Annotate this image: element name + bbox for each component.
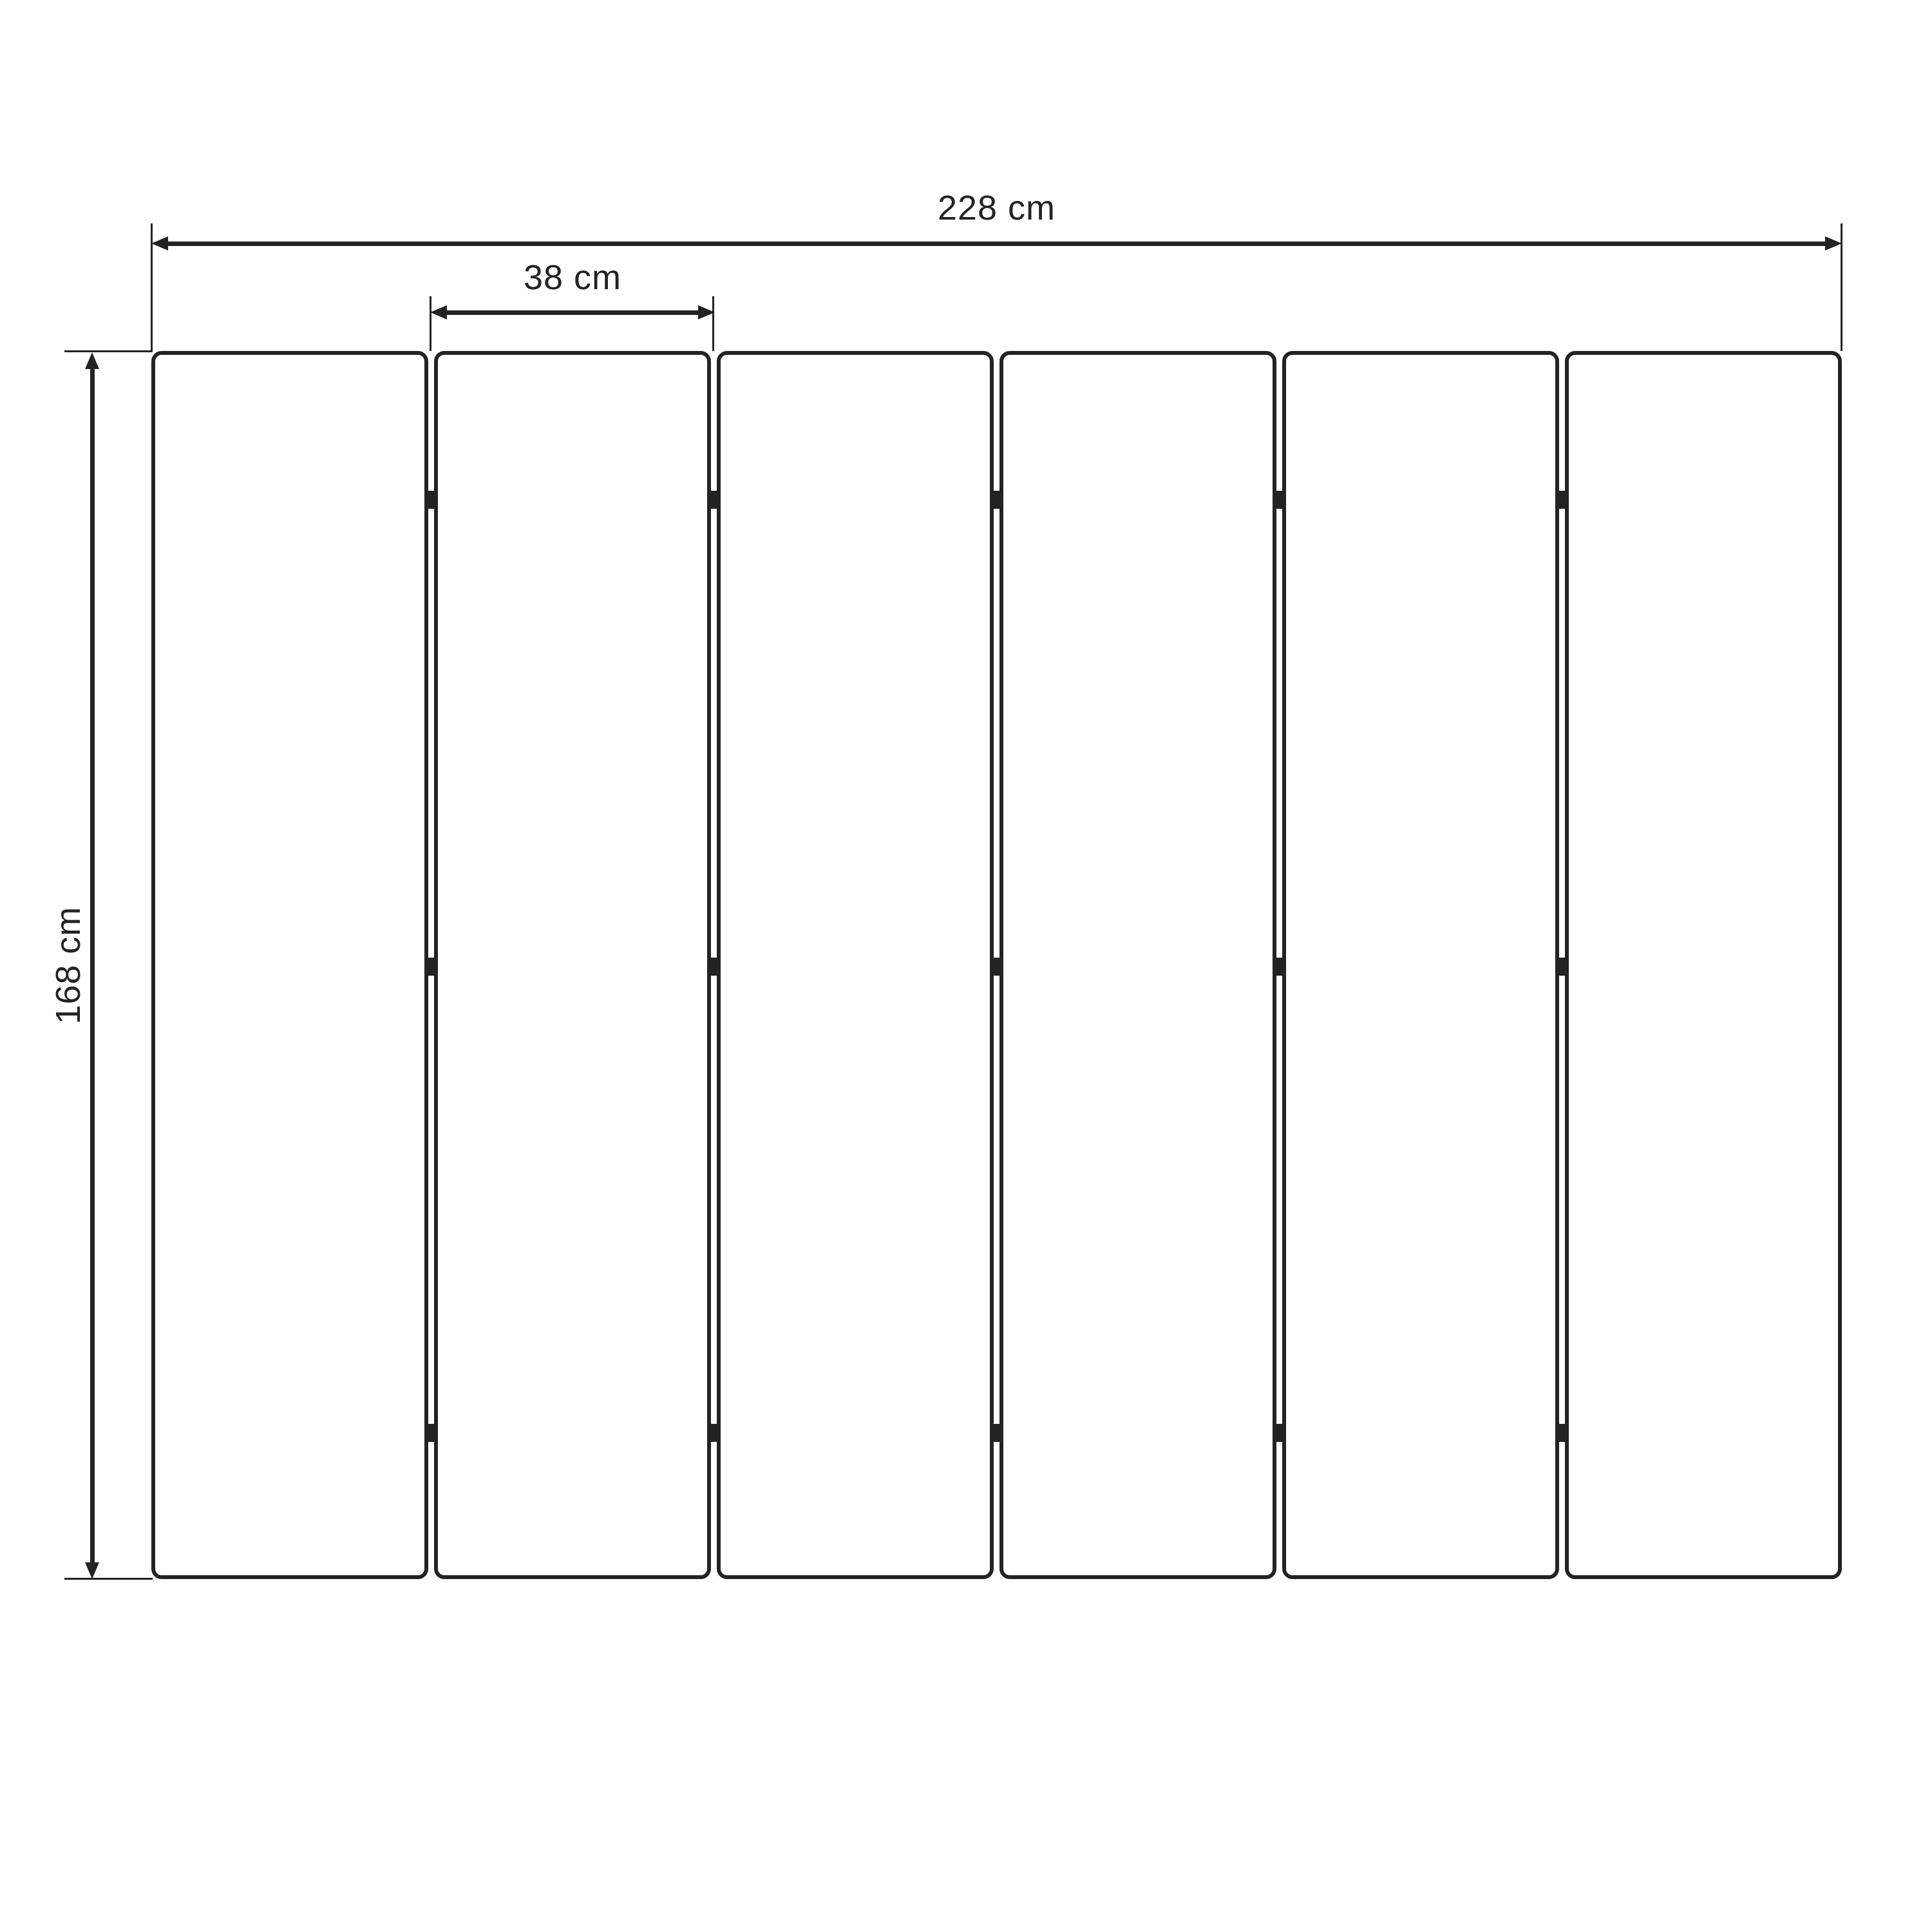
dimension-line-height (90, 364, 95, 1566)
panel (1565, 351, 1842, 1579)
extension-line-panel-right (712, 296, 714, 351)
panel-connector (1275, 958, 1284, 976)
extension-line-height-bottom (64, 1578, 153, 1580)
arrowhead-up-icon (85, 352, 99, 369)
dimension-line-panel-width (442, 310, 703, 315)
panel (1282, 351, 1559, 1579)
arrowhead-right-icon (698, 305, 715, 319)
panel-connector (1558, 1424, 1567, 1442)
panel-connector (427, 1424, 436, 1442)
extension-line-panel-left (430, 296, 431, 351)
dimension-label-height: 168 cm (50, 869, 87, 1062)
dimension-line-total-width (164, 241, 1829, 246)
panel-connector (992, 1424, 1001, 1442)
arrowhead-left-icon (151, 236, 168, 251)
panel (999, 351, 1276, 1579)
dimension-label-panel-width: 38 cm (431, 259, 714, 296)
extension-line-height-top (64, 350, 153, 352)
panel-connector (1275, 491, 1284, 509)
panel-connector (992, 958, 1001, 976)
panel-connector (1558, 958, 1567, 976)
panel-connector (710, 1424, 719, 1442)
panel-connector (1275, 1424, 1284, 1442)
arrowhead-left-icon (430, 305, 447, 319)
panel-connector (427, 491, 436, 509)
panel-connector (710, 491, 719, 509)
arrowhead-down-icon (85, 1562, 99, 1579)
arrowhead-right-icon (1825, 236, 1842, 251)
panel (717, 351, 994, 1579)
panel (151, 351, 428, 1579)
panel-layout-diagram: 228 cm 38 cm 168 cm (0, 0, 1932, 1932)
panel (434, 351, 711, 1579)
panel-connector (992, 491, 1001, 509)
panel-connector (710, 958, 719, 976)
panel-connector (427, 958, 436, 976)
panel-connector (1558, 491, 1567, 509)
dimension-label-total-width: 228 cm (151, 189, 1842, 227)
